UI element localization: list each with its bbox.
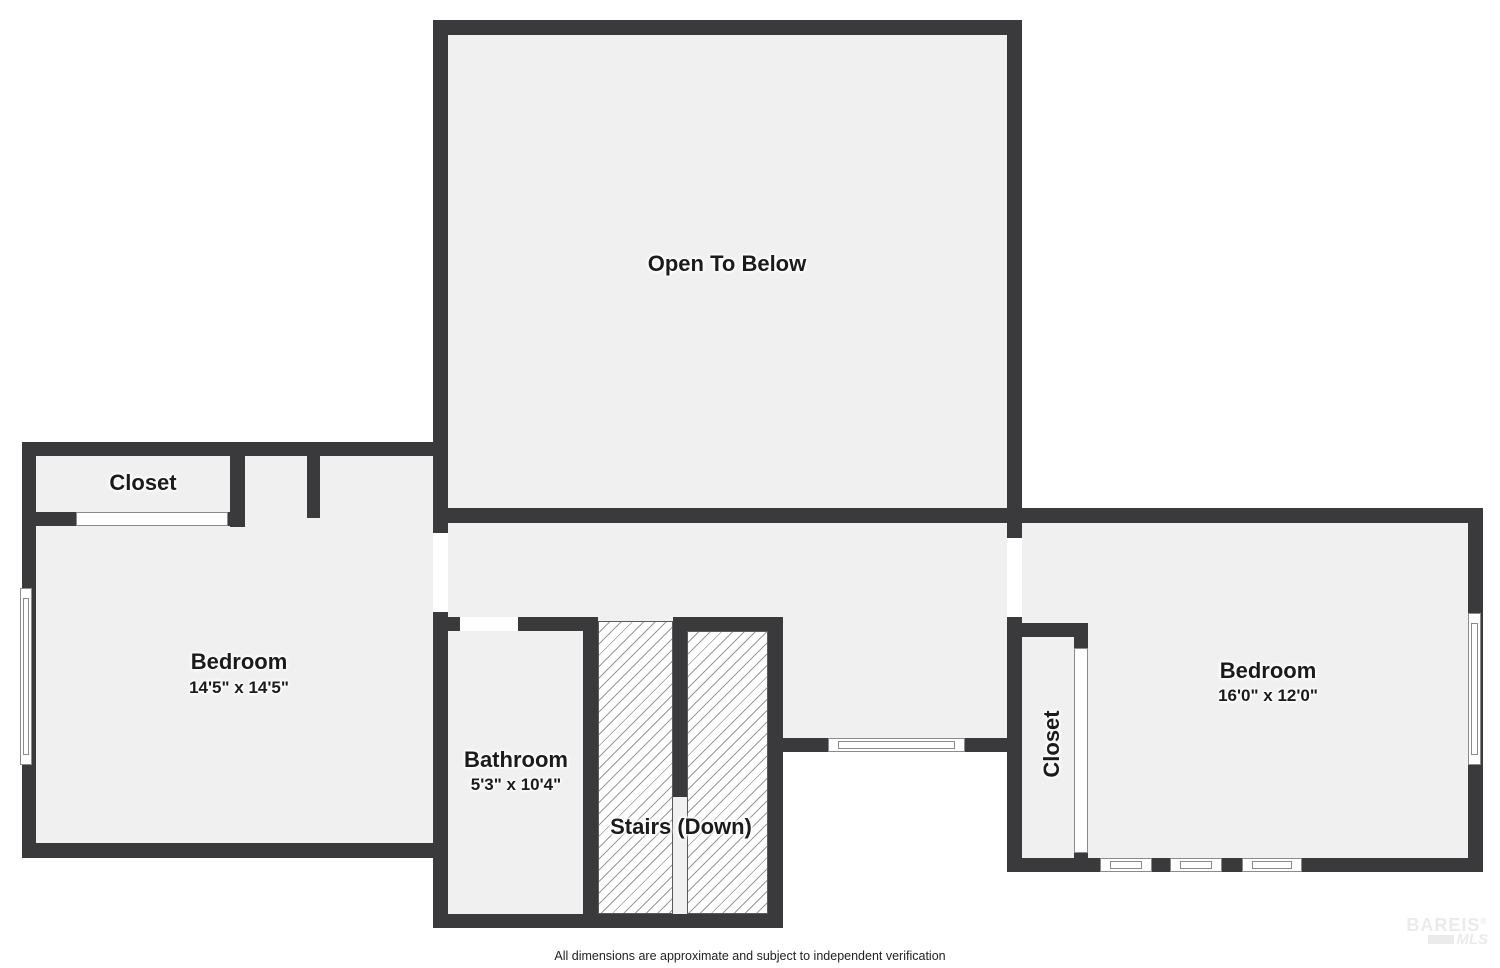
wall-left-wing-bottom [22,843,448,858]
registered-mark-icon: ® [1480,916,1488,926]
brand-watermark: BAREIS® MLS [1406,916,1488,947]
door-closet-right-slider [1074,648,1088,853]
window-right-bedroom-south-2 [1170,858,1222,872]
window-pane [1252,861,1292,869]
door-bedroom-left [433,533,448,612]
label-stairs-down: Stairs (Down) [610,814,752,840]
window-pane [838,741,955,749]
label-bathroom-dims: 5'3" x 10'4" [471,775,561,795]
wall-otb-top [433,20,1022,35]
wall-otb-right [1007,20,1022,523]
window-pane [23,598,29,755]
window-right-bedroom-east [1468,613,1481,765]
floorplan-canvas: Open To Below Closet Bedroom 14'5" x 14'… [0,0,1500,968]
window-pane [1180,861,1212,869]
label-bedroom-left-name: Bedroom [191,649,288,675]
label-closet-right: Closet [1039,710,1065,777]
stairs-run-right [687,631,768,914]
label-bedroom-right-name: Bedroom [1220,658,1317,684]
window-hallway-south [828,738,965,752]
label-bedroom-right-dims: 16'0" x 12'0" [1218,686,1318,706]
window-right-bedroom-south-3 [1242,858,1302,872]
label-bathroom-name: Bathroom [464,747,568,773]
wall-otb-left-and-bathroom-left [433,20,448,928]
disclaimer-text: All dimensions are approximate and subje… [0,949,1500,963]
label-closet-left: Closet [109,470,176,496]
door-bathroom [460,617,518,631]
window-left-bedroom-west [20,588,32,765]
window-pane [1110,861,1142,869]
wall-main-horizontal [433,508,1483,523]
wall-bathroom-right [583,617,598,928]
label-bedroom-left-dims: 14'5" x 14'5" [189,678,289,698]
door-bedroom-right [1007,538,1022,617]
brand-bar-icon [1428,935,1454,944]
wall-entry-stub [307,442,320,518]
window-pane [1471,623,1478,755]
stairs-run-left [598,621,673,914]
label-open-to-below: Open To Below [648,251,806,277]
wall-stairs-top [673,617,783,631]
wall-stairs-divider [673,617,687,797]
door-closet-left-slider [76,512,228,526]
window-right-bedroom-south-1 [1100,858,1152,872]
wall-lower-block-bottom [433,914,783,928]
wall-stairs-right [768,617,783,928]
